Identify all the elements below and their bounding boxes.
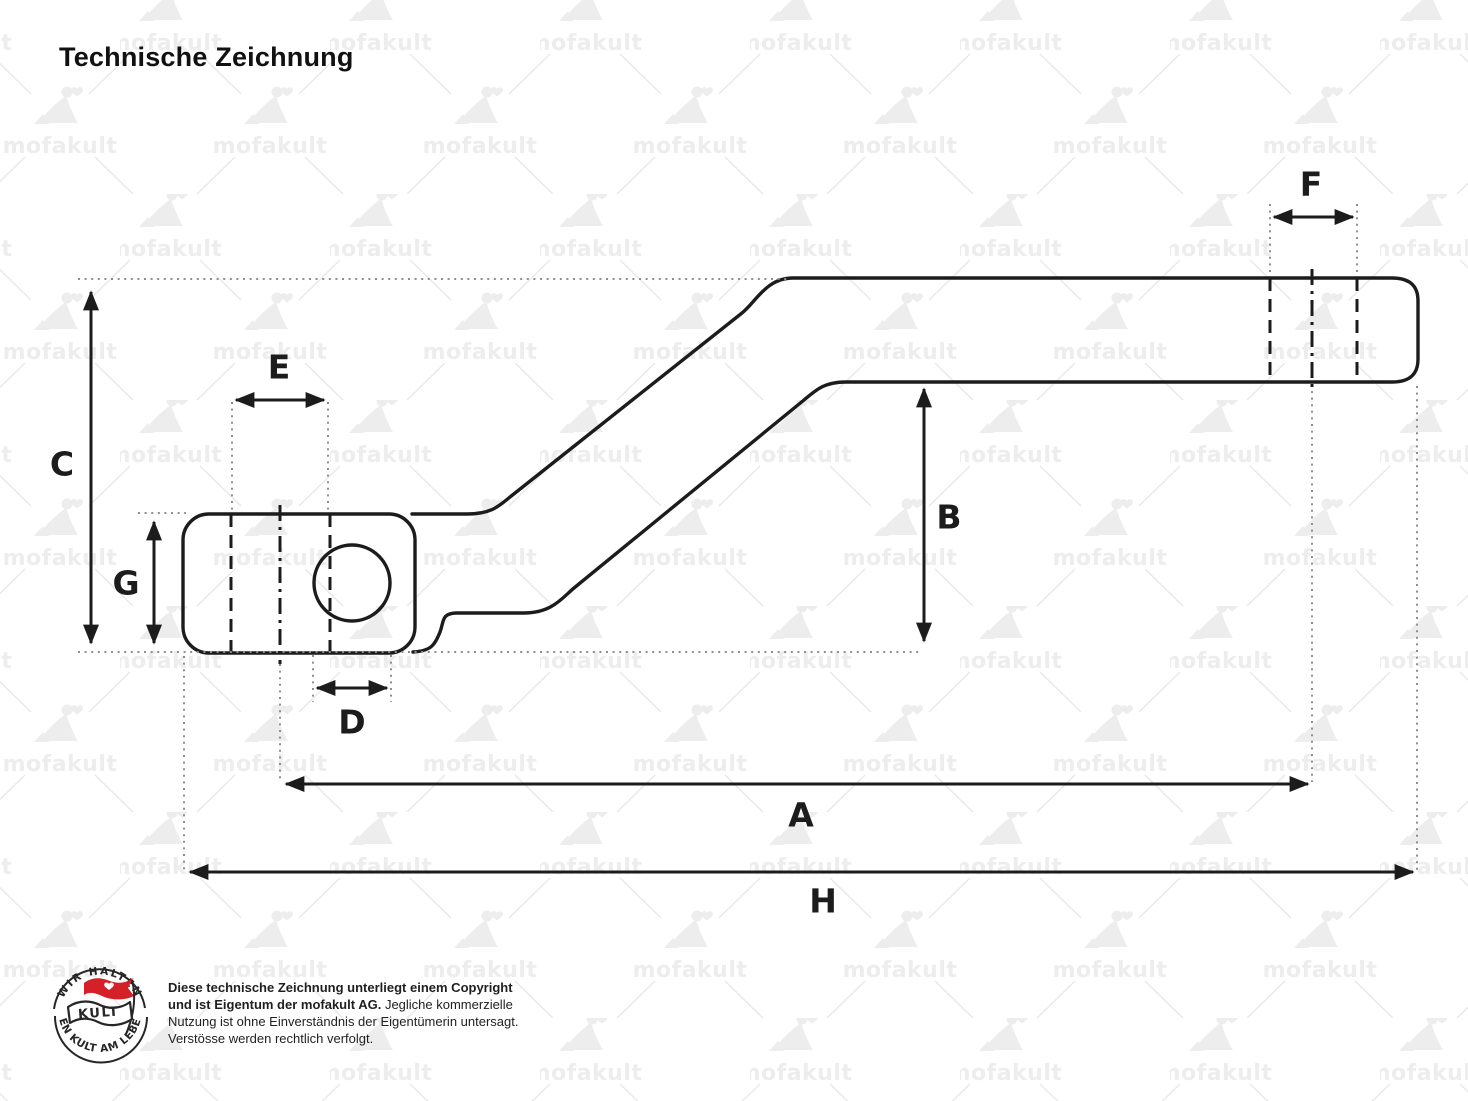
badge-flag-text: KULT	[78, 1005, 120, 1023]
dim-label-g: G	[112, 564, 139, 603]
mofakult-badge-logo: WIR HALTEN DEN KULT AM LEBEN KULT	[48, 958, 158, 1068]
technical-drawing-page: mofakult	[0, 0, 1468, 1101]
technical-drawing-canvas: mofakult	[0, 0, 1468, 1101]
dim-label-a: A	[788, 796, 814, 835]
dim-label-c: C	[50, 445, 74, 484]
dim-label-b: B	[936, 498, 961, 537]
watermark-background	[0, 0, 1468, 1101]
page-title: Technische Zeichnung	[59, 42, 354, 73]
dim-label-d: D	[338, 703, 365, 742]
dim-label-f: F	[1300, 165, 1323, 204]
dim-label-h: H	[809, 882, 837, 921]
copyright-notice: Diese technische Zeichnung unterliegt ei…	[168, 979, 526, 1047]
dim-label-e: E	[268, 348, 291, 387]
